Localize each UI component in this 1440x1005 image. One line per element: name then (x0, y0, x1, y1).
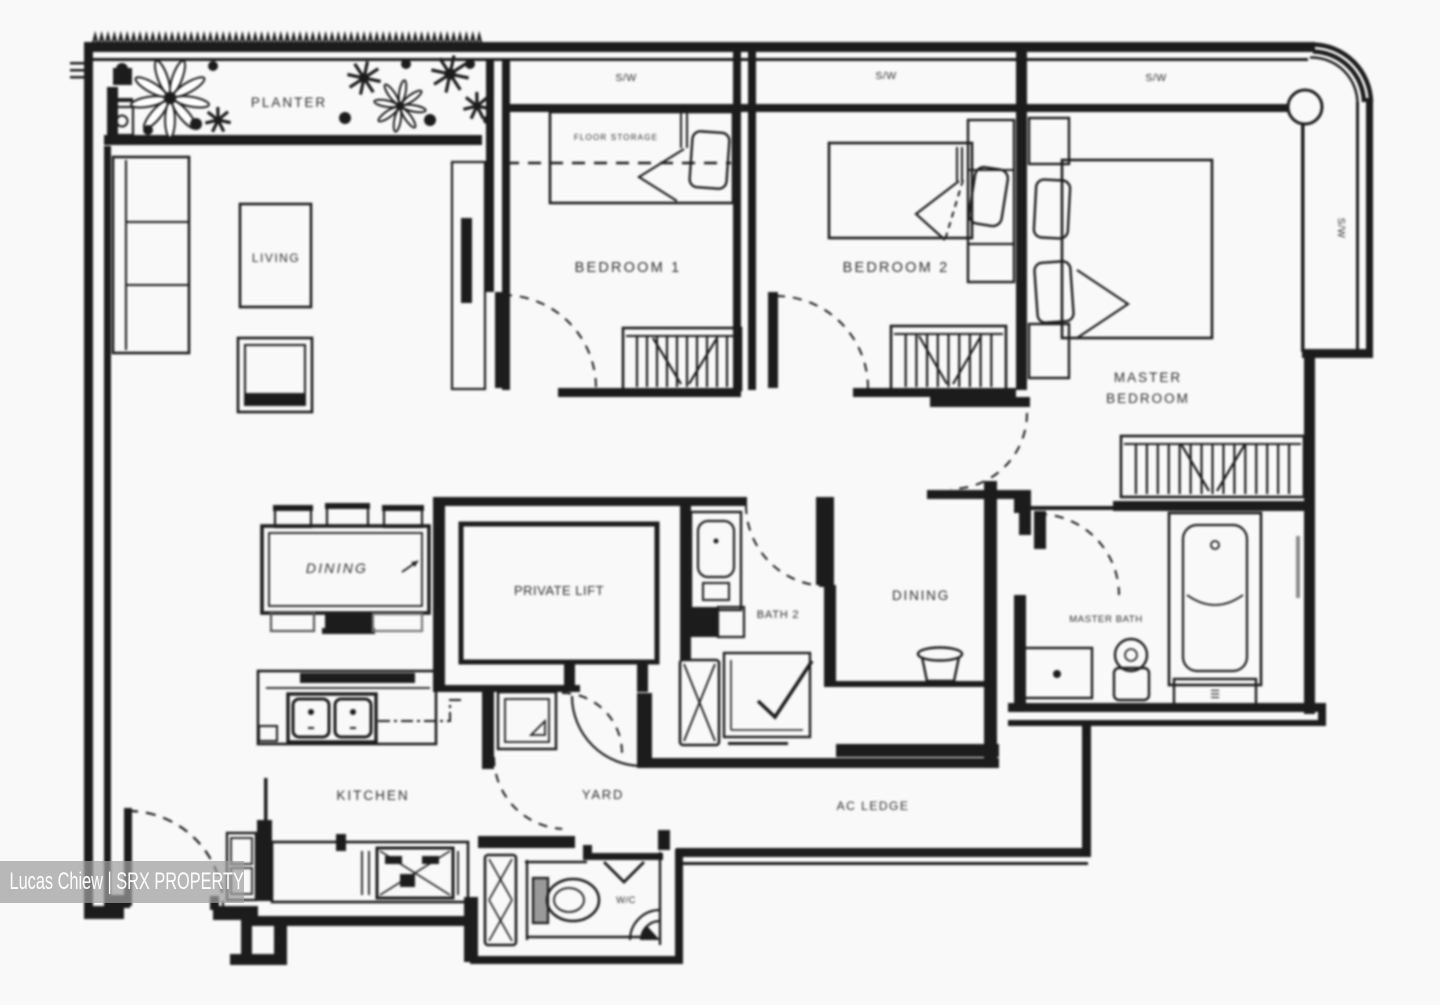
svg-text:MASTER BATH: MASTER BATH (1069, 614, 1142, 625)
svg-text:PLANTER: PLANTER (251, 95, 327, 110)
svg-text:☰: ☰ (1210, 689, 1220, 701)
svg-text:S/W: S/W (1335, 218, 1346, 238)
svg-text:S/W: S/W (1145, 72, 1166, 84)
svg-text:DINING: DINING (306, 560, 368, 576)
svg-text:AC LEDGE: AC LEDGE (837, 799, 910, 813)
svg-text:BEDROOM 1: BEDROOM 1 (575, 260, 682, 276)
svg-text:BATH 2: BATH 2 (757, 609, 800, 621)
svg-text:DINING: DINING (892, 588, 950, 603)
svg-text:YARD: YARD (582, 787, 624, 802)
svg-text:KITCHEN: KITCHEN (336, 788, 409, 803)
svg-text:LIVING: LIVING (252, 251, 300, 265)
svg-text:W/C: W/C (616, 895, 636, 906)
svg-text:BEDROOM: BEDROOM (1106, 391, 1190, 406)
svg-text:FLOOR STORAGE: FLOOR STORAGE (574, 133, 658, 142)
svg-text:BEDROOM 2: BEDROOM 2 (843, 260, 950, 276)
svg-text:MASTER: MASTER (1114, 370, 1182, 385)
svg-text:PRIVATE LIFT: PRIVATE LIFT (514, 583, 604, 598)
svg-text:S/W: S/W (875, 70, 896, 82)
svg-text:S/W: S/W (615, 72, 636, 84)
